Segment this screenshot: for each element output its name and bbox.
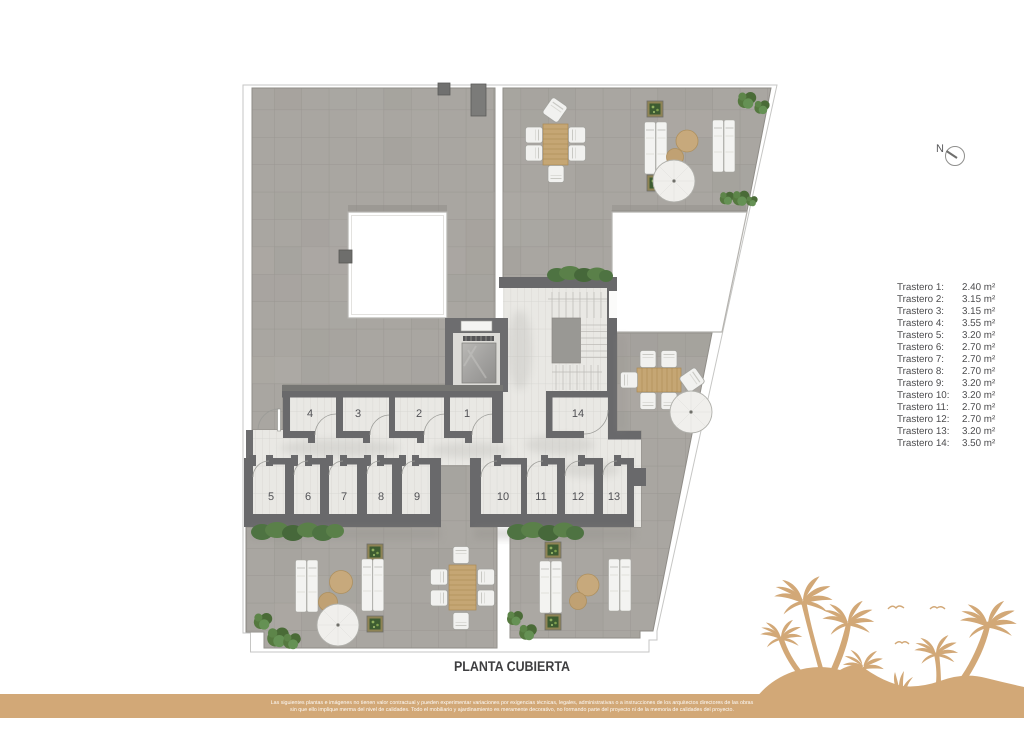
svg-text:3.20 m²: 3.20 m²: [962, 330, 996, 341]
svg-text:Trastero 5:: Trastero 5:: [897, 330, 944, 341]
svg-text:6: 6: [305, 491, 311, 503]
svg-text:Trastero 8:: Trastero 8:: [897, 366, 944, 377]
svg-text:13: 13: [608, 491, 620, 503]
svg-text:5: 5: [268, 491, 274, 503]
svg-text:Trastero 4:: Trastero 4:: [897, 318, 944, 329]
svg-text:N: N: [936, 143, 944, 155]
svg-text:Trastero 13:: Trastero 13:: [897, 426, 949, 437]
svg-text:2.70 m²: 2.70 m²: [962, 402, 996, 413]
svg-text:7: 7: [341, 491, 347, 503]
svg-text:Trastero 3:: Trastero 3:: [897, 306, 944, 317]
svg-text:2.70 m²: 2.70 m²: [962, 414, 996, 425]
svg-text:11: 11: [535, 491, 546, 503]
svg-text:Trastero 7:: Trastero 7:: [897, 354, 944, 365]
svg-text:3.20 m²: 3.20 m²: [962, 390, 996, 401]
svg-text:8: 8: [378, 491, 384, 503]
svg-text:3.55 m²: 3.55 m²: [962, 318, 996, 329]
svg-text:Trastero 2:: Trastero 2:: [897, 294, 944, 305]
svg-text:3.15 m²: 3.15 m²: [962, 306, 996, 317]
svg-text:Trastero 14:: Trastero 14:: [897, 438, 949, 449]
svg-text:9: 9: [414, 491, 420, 503]
svg-text:2.70 m²: 2.70 m²: [962, 354, 996, 365]
svg-text:sin que ello implique merma de: sin que ello implique merma del nivel de…: [290, 707, 734, 713]
svg-text:3.20 m²: 3.20 m²: [962, 426, 996, 437]
svg-text:3: 3: [355, 408, 361, 420]
svg-text:Trastero 9:: Trastero 9:: [897, 378, 944, 389]
svg-text:14: 14: [572, 408, 584, 420]
svg-text:Trastero 12:: Trastero 12:: [897, 414, 949, 425]
svg-text:3.15 m²: 3.15 m²: [962, 294, 996, 305]
svg-text:Trastero 1:: Trastero 1:: [897, 282, 944, 293]
svg-text:3.50 m²: 3.50 m²: [962, 438, 996, 449]
svg-text:10: 10: [497, 491, 509, 503]
svg-text:1: 1: [464, 408, 470, 420]
svg-text:4: 4: [307, 408, 313, 420]
svg-text:2.70 m²: 2.70 m²: [962, 366, 996, 377]
svg-text:Trastero 11:: Trastero 11:: [897, 402, 949, 413]
svg-text:Las siguientes plantas e imáge: Las siguientes plantas e imágenes no tie…: [271, 700, 754, 706]
svg-text:3.20 m²: 3.20 m²: [962, 378, 996, 389]
svg-text:Trastero 6:: Trastero 6:: [897, 342, 944, 353]
svg-text:12: 12: [572, 491, 584, 503]
svg-text:PLANTA CUBIERTA: PLANTA CUBIERTA: [454, 658, 570, 674]
svg-text:2: 2: [416, 408, 422, 420]
svg-text:2.40 m²: 2.40 m²: [962, 282, 996, 293]
svg-text:Trastero 10:: Trastero 10:: [897, 390, 949, 401]
svg-text:2.70 m²: 2.70 m²: [962, 342, 996, 353]
